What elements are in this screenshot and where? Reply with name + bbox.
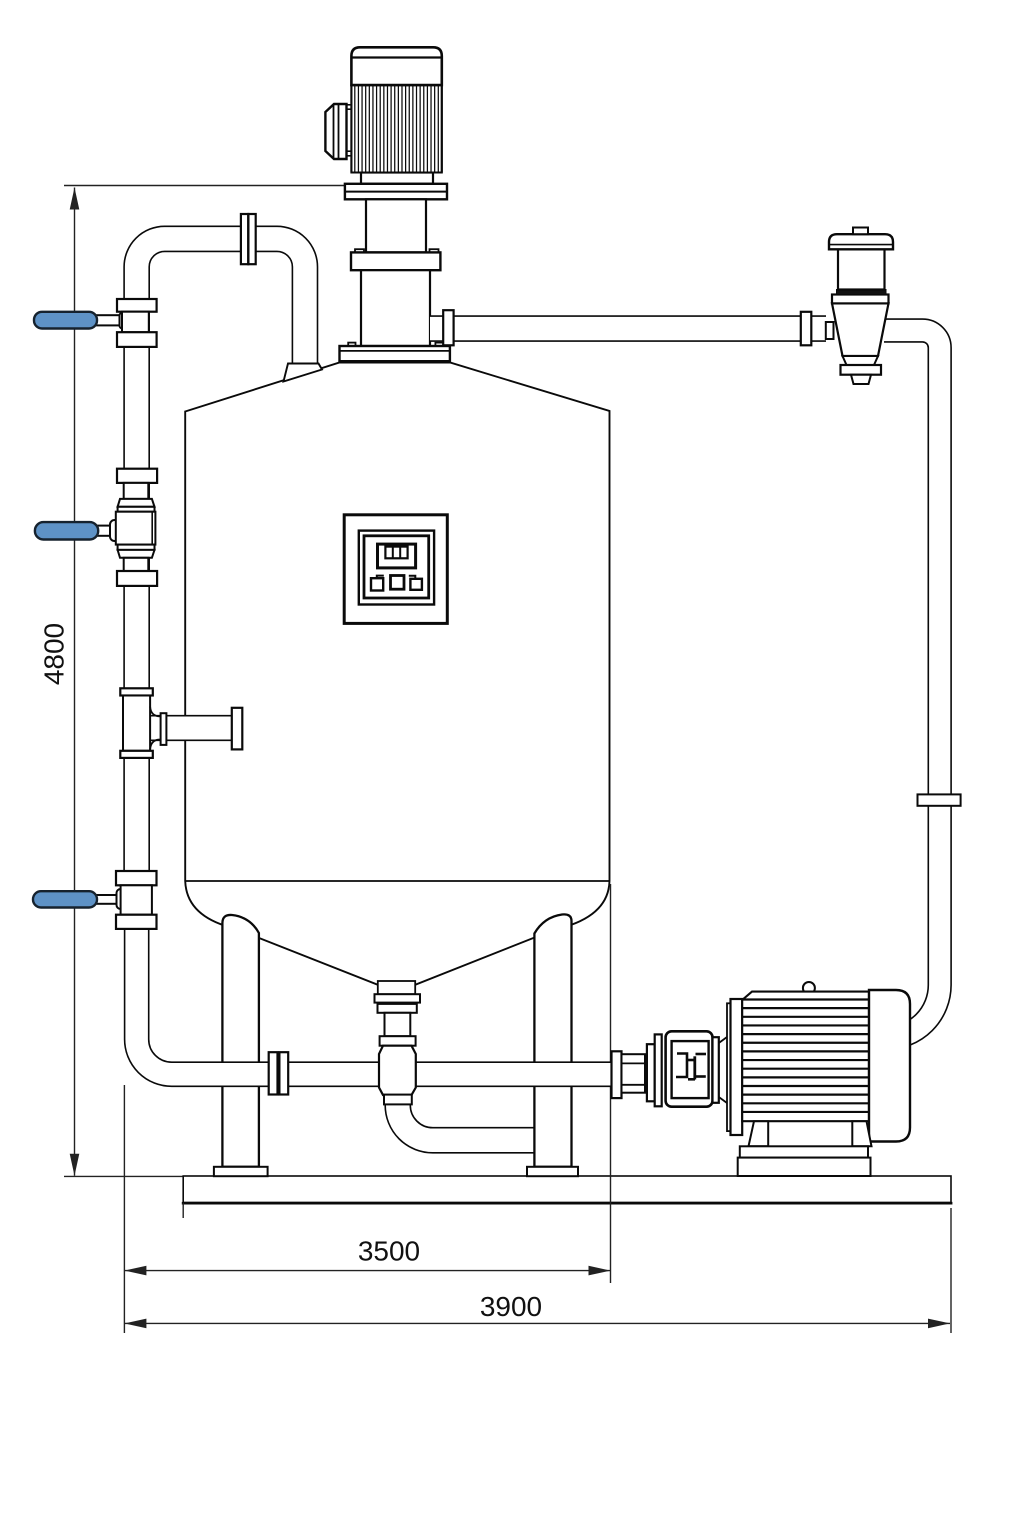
svg-text:3900: 3900 [480,1291,542,1322]
svg-text:3500: 3500 [358,1236,420,1267]
svg-text:4800: 4800 [38,623,69,685]
